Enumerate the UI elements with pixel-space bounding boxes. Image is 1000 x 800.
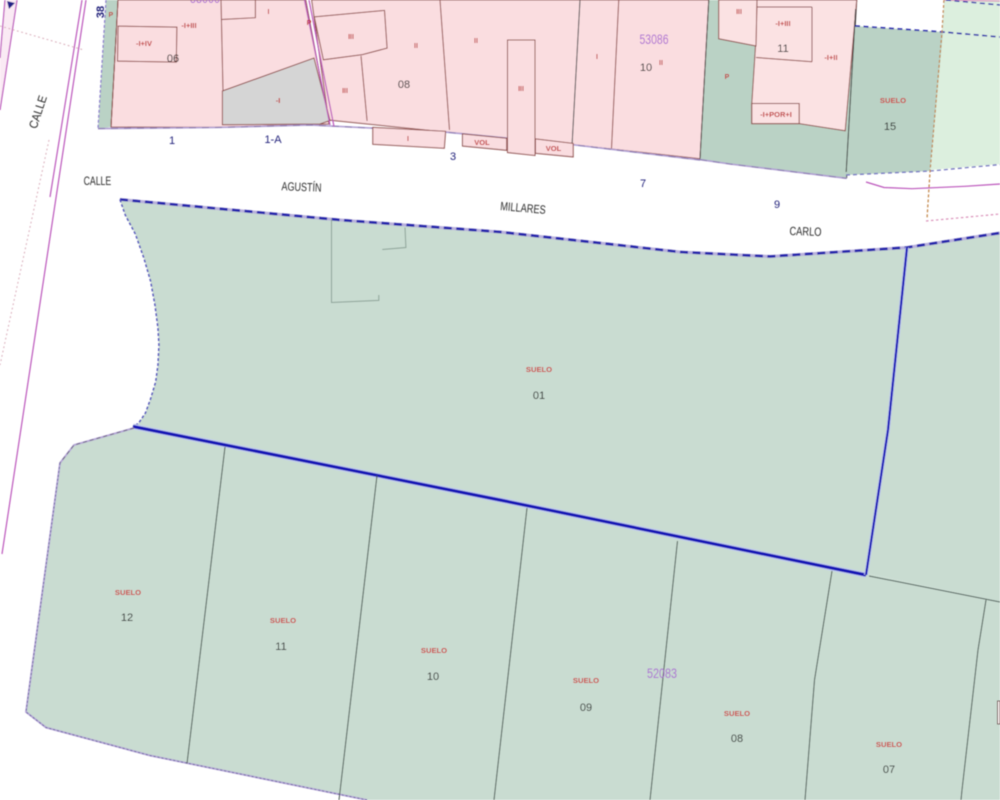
svg-text:09: 09 (580, 702, 592, 714)
svg-text:AGUSTÍN: AGUSTÍN (281, 178, 321, 194)
svg-text:SUELO: SUELO (526, 365, 552, 374)
svg-text:P: P (108, 12, 113, 19)
svg-text:1-A: 1-A (264, 134, 282, 146)
svg-text:-I: -I (276, 96, 281, 105)
svg-text:08: 08 (398, 79, 410, 91)
svg-text:III: III (736, 9, 742, 16)
svg-text:9: 9 (774, 199, 780, 211)
svg-text:1: 1 (169, 135, 175, 147)
svg-text:7: 7 (640, 178, 646, 190)
svg-text:07: 07 (883, 764, 895, 776)
svg-text:-I+POR+I: -I+POR+I (760, 110, 792, 119)
svg-text:I: I (596, 54, 598, 61)
svg-text:II: II (474, 38, 478, 45)
svg-text:I: I (407, 136, 409, 143)
svg-text:08: 08 (731, 733, 743, 745)
svg-text:III: III (518, 86, 524, 93)
svg-text:SUELO: SUELO (115, 588, 141, 597)
svg-text:3: 3 (450, 151, 456, 163)
svg-text:11: 11 (777, 43, 788, 55)
svg-text:SUELO: SUELO (573, 676, 599, 685)
svg-text:P: P (725, 74, 730, 81)
svg-text:-I+III: -I+III (775, 19, 790, 28)
svg-text:SUELO: SUELO (421, 646, 447, 655)
svg-text:SUELO: SUELO (270, 616, 296, 625)
svg-text:SUELO: SUELO (880, 96, 906, 105)
svg-text:VOL: VOL (474, 138, 490, 147)
svg-text:-I+IV: -I+IV (136, 39, 152, 48)
svg-text:01: 01 (533, 390, 545, 402)
svg-text:III: III (342, 88, 348, 95)
svg-text:38: 38 (95, 6, 107, 18)
svg-text:52083: 52083 (647, 665, 677, 681)
svg-text:53086: 53086 (640, 31, 669, 47)
svg-text:12: 12 (121, 612, 133, 624)
svg-text:P: P (307, 20, 312, 27)
svg-text:III: III (348, 34, 354, 41)
svg-text:53000: 53000 (190, 0, 220, 6)
svg-text:10: 10 (640, 62, 652, 74)
svg-text:SUELO: SUELO (724, 709, 750, 718)
svg-text:II: II (414, 43, 418, 50)
svg-text:SUELO: SUELO (876, 740, 902, 749)
svg-text:-I+III: -I+III (181, 21, 196, 30)
svg-text:-I+II: -I+II (824, 53, 837, 62)
svg-text:VOL: VOL (546, 144, 562, 153)
svg-text:CARLO: CARLO (789, 224, 821, 239)
svg-text:CALLE: CALLE (84, 174, 112, 188)
svg-text:11: 11 (275, 641, 286, 653)
svg-text:II: II (659, 60, 663, 67)
svg-text:06: 06 (167, 53, 179, 65)
svg-text:10: 10 (427, 671, 439, 683)
svg-text:15: 15 (884, 121, 896, 133)
svg-text:I: I (268, 9, 270, 16)
